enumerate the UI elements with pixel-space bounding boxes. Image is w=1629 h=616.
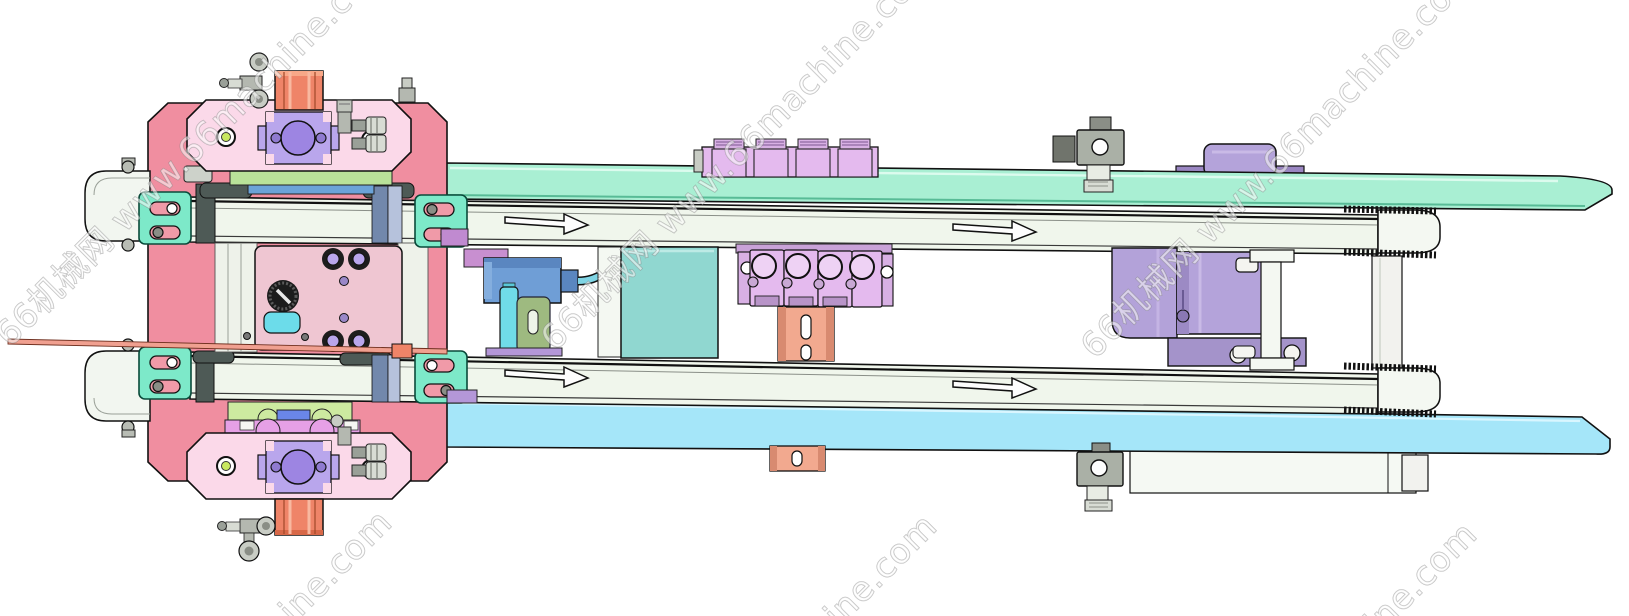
belt-roller: [1372, 256, 1402, 368]
air-cylinder-bottom: [218, 499, 324, 561]
adjust-knob: [267, 280, 299, 312]
din-rail-bracket: [770, 446, 825, 471]
valve-bank-bottom: [736, 244, 893, 307]
cylinder-rod-cyan: [500, 287, 518, 352]
clamp-cylinder-bore: [281, 121, 315, 155]
guide-strip-blue: [248, 185, 374, 194]
watermark-text: 66机械网 www.66machine.com: [1073, 514, 1485, 616]
sensor-bracket-bottom: [1077, 443, 1123, 511]
pneumatic-fitting: [218, 517, 276, 561]
cad-screenshot: 66机械网 www.66machine.com 66机械网 www.66mach…: [0, 0, 1629, 616]
mount-bracket-teal: [139, 347, 191, 399]
watermark-text: 66机械网 www.66machine.com: [0, 502, 400, 616]
din-rail-bracket: [778, 307, 834, 361]
right-base-bar: [1130, 451, 1416, 493]
right-top-pulley: [1378, 210, 1440, 253]
right-bottom-pulley: [1378, 368, 1440, 412]
cyan-label-chip: [264, 312, 300, 333]
watermark-text: 66机械网 www.66machine.com: [533, 506, 945, 616]
